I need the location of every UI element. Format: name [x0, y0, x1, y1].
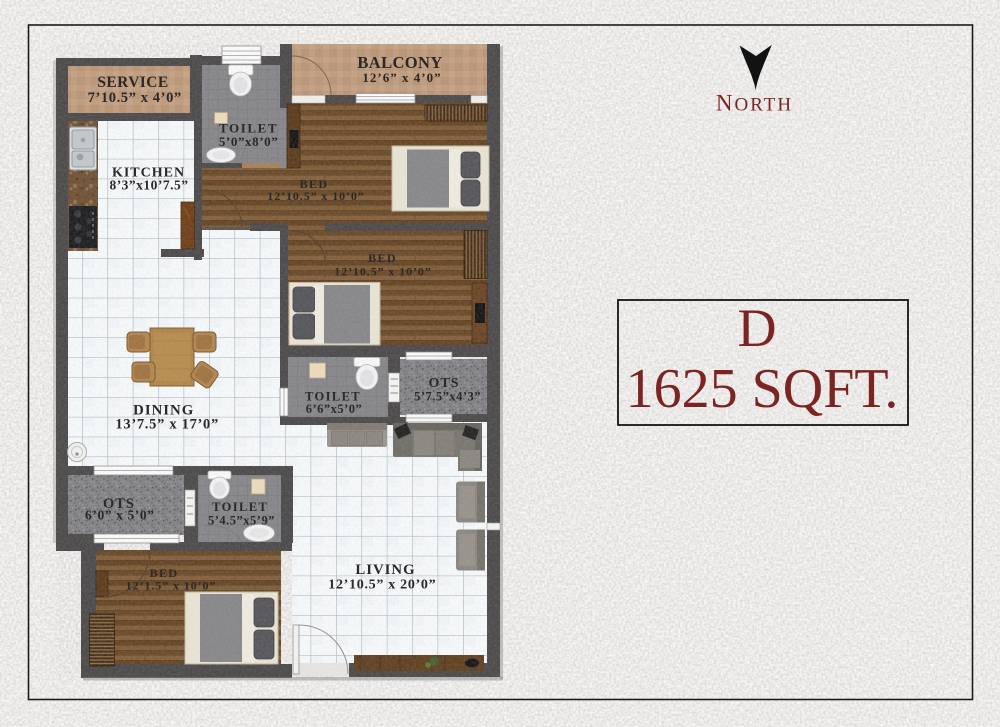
svg-text:SERVICE: SERVICE	[97, 74, 168, 91]
svg-text:6’0” x 5’0”: 6’0” x 5’0”	[85, 508, 155, 523]
svg-text:12’10.5” x 10’0”: 12’10.5” x 10’0”	[334, 264, 431, 278]
svg-text:LIVING: LIVING	[355, 562, 415, 578]
svg-text:TOILET: TOILET	[212, 500, 268, 514]
svg-text:BALCONY: BALCONY	[357, 53, 442, 72]
svg-text:8’3”x10’7.5”: 8’3”x10’7.5”	[109, 178, 188, 193]
svg-text:12’10.5” x 20’0”: 12’10.5” x 20’0”	[328, 577, 436, 592]
svg-text:5’7.5”x4’3”: 5’7.5”x4’3”	[414, 390, 481, 404]
svg-text:12’1.5” x 10’0”: 12’1.5” x 10’0”	[126, 579, 217, 593]
svg-text:5’4.5”x5’9”: 5’4.5”x5’9”	[208, 514, 275, 528]
svg-text:7’10.5” x 4’0”: 7’10.5” x 4’0”	[88, 90, 182, 106]
svg-text:13’7.5” x 17’0”: 13’7.5” x 17’0”	[115, 417, 219, 433]
svg-text:12’6” x 4’0”: 12’6” x 4’0”	[362, 70, 441, 85]
svg-text:D: D	[738, 298, 777, 358]
svg-text:BED: BED	[368, 251, 397, 265]
svg-text:5’0”x8’0”: 5’0”x8’0”	[219, 134, 279, 149]
svg-text:1625 SQFT.: 1625 SQFT.	[626, 358, 899, 420]
svg-text:6’6”x5’0”: 6’6”x5’0”	[306, 402, 363, 416]
svg-text:12’10.5” x 10’0”: 12’10.5” x 10’0”	[267, 189, 364, 203]
svg-text:NORTH: NORTH	[716, 91, 793, 116]
